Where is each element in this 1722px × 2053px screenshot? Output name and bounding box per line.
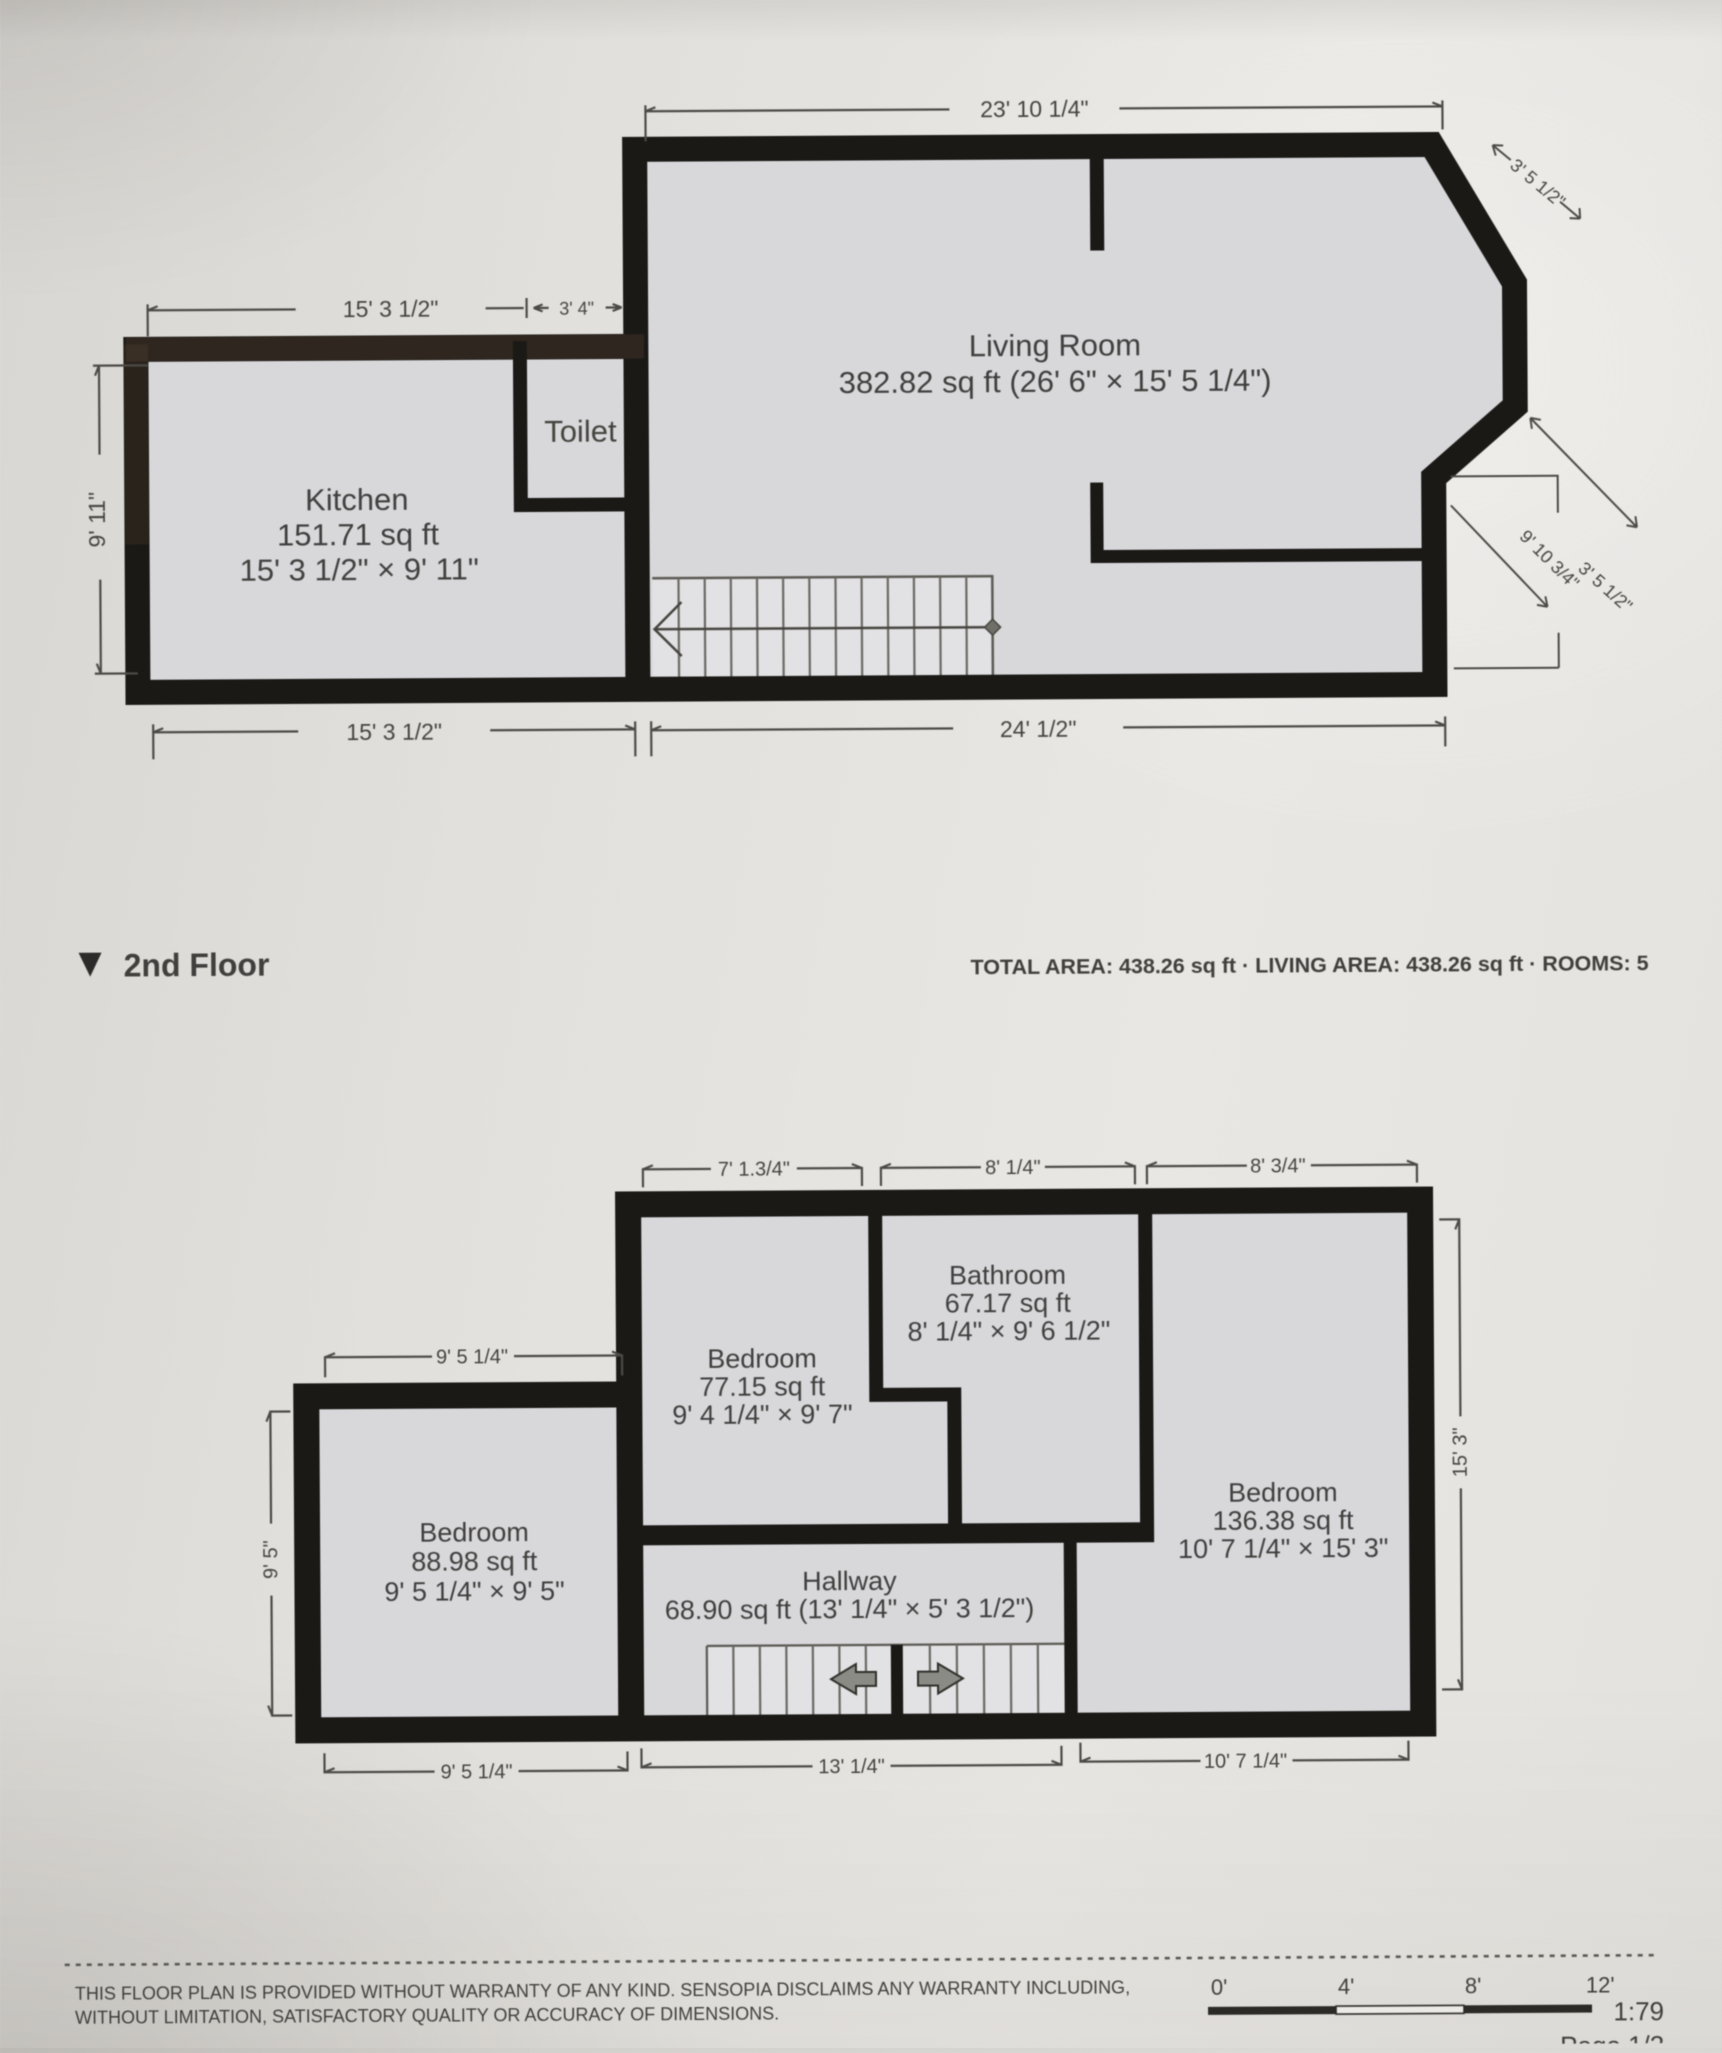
svg-text:151.71 sq ft: 151.71 sq ft	[277, 517, 440, 553]
svg-text:4': 4'	[1338, 1974, 1355, 1999]
svg-text:Living Room: Living Room	[969, 327, 1142, 363]
svg-text:1:79: 1:79	[1613, 1996, 1664, 2026]
svg-text:Toilet: Toilet	[544, 413, 617, 448]
svg-text:15' 3 1/2": 15' 3 1/2"	[346, 719, 442, 746]
svg-text:10' 7 1/4" × 15' 3": 10' 7 1/4" × 15' 3"	[1178, 1533, 1389, 1564]
svg-text:15' 3 1/2" × 9' 11": 15' 3 1/2" × 9' 11"	[239, 551, 478, 587]
svg-text:67.17 sq ft: 67.17 sq ft	[945, 1288, 1072, 1319]
svg-text:Hallway: Hallway	[802, 1566, 897, 1597]
svg-text:8' 1/4": 8' 1/4"	[985, 1157, 1041, 1179]
svg-text:9' 5 1/4": 9' 5 1/4"	[440, 1761, 512, 1783]
svg-text:8' 3/4": 8' 3/4"	[1250, 1155, 1306, 1177]
svg-text:15' 3": 15' 3"	[1449, 1427, 1471, 1477]
svg-text:24' 1/2": 24' 1/2"	[1000, 716, 1077, 742]
svg-text:77.15 sq ft: 77.15 sq ft	[699, 1371, 826, 1402]
svg-text:136.38 sq ft: 136.38 sq ft	[1212, 1505, 1354, 1536]
svg-text:2nd Floor: 2nd Floor	[124, 947, 270, 984]
svg-text:8': 8'	[1465, 1973, 1482, 1998]
svg-text:Page 1/2: Page 1/2	[1560, 2030, 1664, 2053]
svg-text:88.98 sq ft: 88.98 sq ft	[411, 1546, 538, 1577]
svg-text:23' 10 1/4": 23' 10 1/4"	[980, 96, 1089, 123]
svg-text:15' 3 1/2": 15' 3 1/2"	[343, 296, 439, 323]
svg-text:3' 5 1/2": 3' 5 1/2"	[1574, 558, 1636, 616]
svg-text:0': 0'	[1211, 1975, 1228, 2000]
svg-text:3' 4": 3' 4"	[559, 299, 594, 319]
svg-text:12': 12'	[1586, 1972, 1615, 1997]
svg-text:7' 1.3/4": 7' 1.3/4"	[718, 1158, 790, 1180]
svg-text:TOTAL AREA: 438.26 sq ft · LI: TOTAL AREA: 438.26 sq ft · LIVING AREA: …	[970, 951, 1648, 979]
svg-text:9' 5": 9' 5"	[260, 1540, 282, 1579]
svg-text:10' 7 1/4": 10' 7 1/4"	[1204, 1750, 1287, 1773]
svg-text:3' 5 1/2": 3' 5 1/2"	[1506, 155, 1569, 212]
svg-text:9' 5 1/4" × 9' 5": 9' 5 1/4" × 9' 5"	[384, 1576, 565, 1607]
svg-text:Bathroom: Bathroom	[949, 1260, 1066, 1291]
svg-text:9' 11": 9' 11"	[84, 492, 110, 548]
svg-text:8' 1/4" × 9' 6 1/2": 8' 1/4" × 9' 6 1/2"	[907, 1315, 1110, 1346]
svg-text:68.90 sq ft (13' 1/4" × 5' 3 1: 68.90 sq ft (13' 1/4" × 5' 3 1/2")	[665, 1593, 1035, 1625]
svg-text:382.82 sq ft (26' 6" × 15' 5 1: 382.82 sq ft (26' 6" × 15' 5 1/4")	[839, 362, 1272, 400]
svg-text:Bedroom: Bedroom	[1228, 1477, 1338, 1508]
svg-text:13' 1/4": 13' 1/4"	[818, 1756, 885, 1778]
svg-text:Bedroom: Bedroom	[419, 1517, 529, 1548]
svg-text:THIS FLOOR PLAN IS PROVIDED WI: THIS FLOOR PLAN IS PROVIDED WITHOUT WARR…	[75, 1977, 1130, 2003]
svg-text:9' 5 1/4": 9' 5 1/4"	[436, 1346, 508, 1368]
svg-text:WITHOUT LIMITATION, SATISFACTO: WITHOUT LIMITATION, SATISFACTORY QUALITY…	[75, 2004, 779, 2028]
svg-text:Bedroom: Bedroom	[707, 1343, 817, 1374]
svg-text:Kitchen: Kitchen	[305, 482, 409, 518]
svg-text:9' 4 1/4" × 9' 7": 9' 4 1/4" × 9' 7"	[672, 1399, 853, 1430]
